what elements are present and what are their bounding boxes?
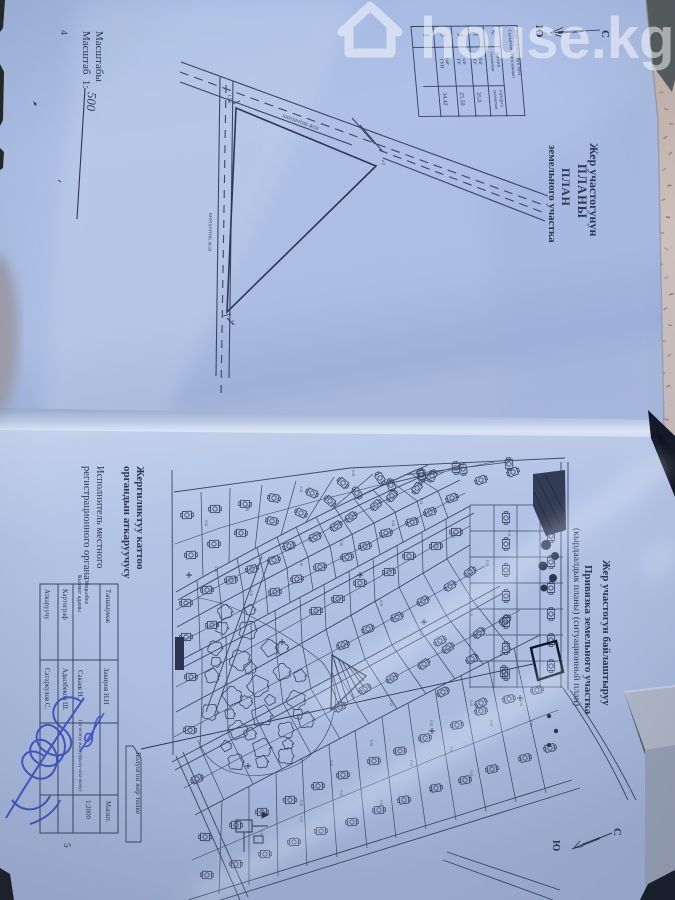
- svg-text:house.kg: house.kg: [420, 6, 675, 71]
